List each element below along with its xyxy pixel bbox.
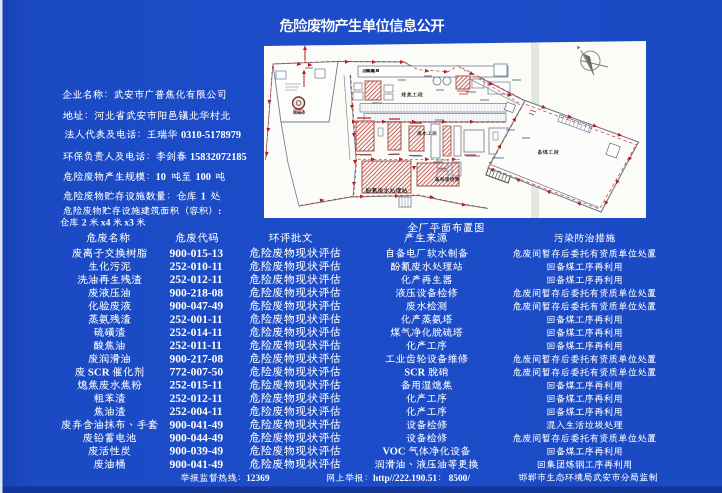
svg-text:900-041-49: 900-041-49: [170, 459, 224, 471]
svg-text:252-012-11: 252-012-11: [170, 393, 223, 405]
svg-text:252-011-11: 252-011-11: [170, 340, 223, 352]
svg-text::: :: [218, 206, 221, 217]
svg-text:252-015-11: 252-015-11: [170, 380, 223, 392]
svg-text:x4: x4: [101, 218, 111, 229]
svg-text:15832072185: 15832072185: [190, 152, 247, 163]
svg-text:252-014-11: 252-014-11: [170, 327, 223, 339]
svg-text:8500/: 8500/: [449, 474, 471, 484]
svg-text:252-004-11: 252-004-11: [170, 406, 223, 418]
svg-text:900-039-49: 900-039-49: [170, 446, 224, 458]
svg-text:100: 100: [196, 172, 211, 183]
svg-text:SCR: SCR: [404, 368, 425, 379]
svg-text:http//222.190.51: http//222.190.51: [373, 474, 437, 484]
svg-text:x3: x3: [124, 218, 134, 229]
svg-text:VOC: VOC: [383, 447, 406, 458]
svg-text:900-015-13: 900-015-13: [170, 248, 224, 260]
svg-text:252-010-11: 252-010-11: [170, 261, 223, 273]
svg-text:900-218-08: 900-218-08: [170, 287, 224, 299]
svg-text:SCR: SCR: [88, 367, 110, 379]
svg-text:2: 2: [82, 218, 87, 229]
svg-text:900-047-49: 900-047-49: [170, 301, 224, 313]
svg-text:10: 10: [156, 172, 166, 183]
svg-text:0310-5178979: 0310-5178979: [181, 130, 241, 141]
svg-text:900-217-08: 900-217-08: [170, 353, 224, 365]
svg-text:12369: 12369: [246, 474, 270, 484]
svg-text:900-041-49: 900-041-49: [170, 419, 224, 431]
svg-text:252-012-11: 252-012-11: [170, 274, 223, 286]
svg-text:900-044-49: 900-044-49: [170, 433, 224, 445]
svg-text:772-007-50: 772-007-50: [170, 367, 224, 379]
svg-text:1: 1: [201, 192, 206, 203]
svg-text:252-001-11: 252-001-11: [170, 314, 223, 326]
